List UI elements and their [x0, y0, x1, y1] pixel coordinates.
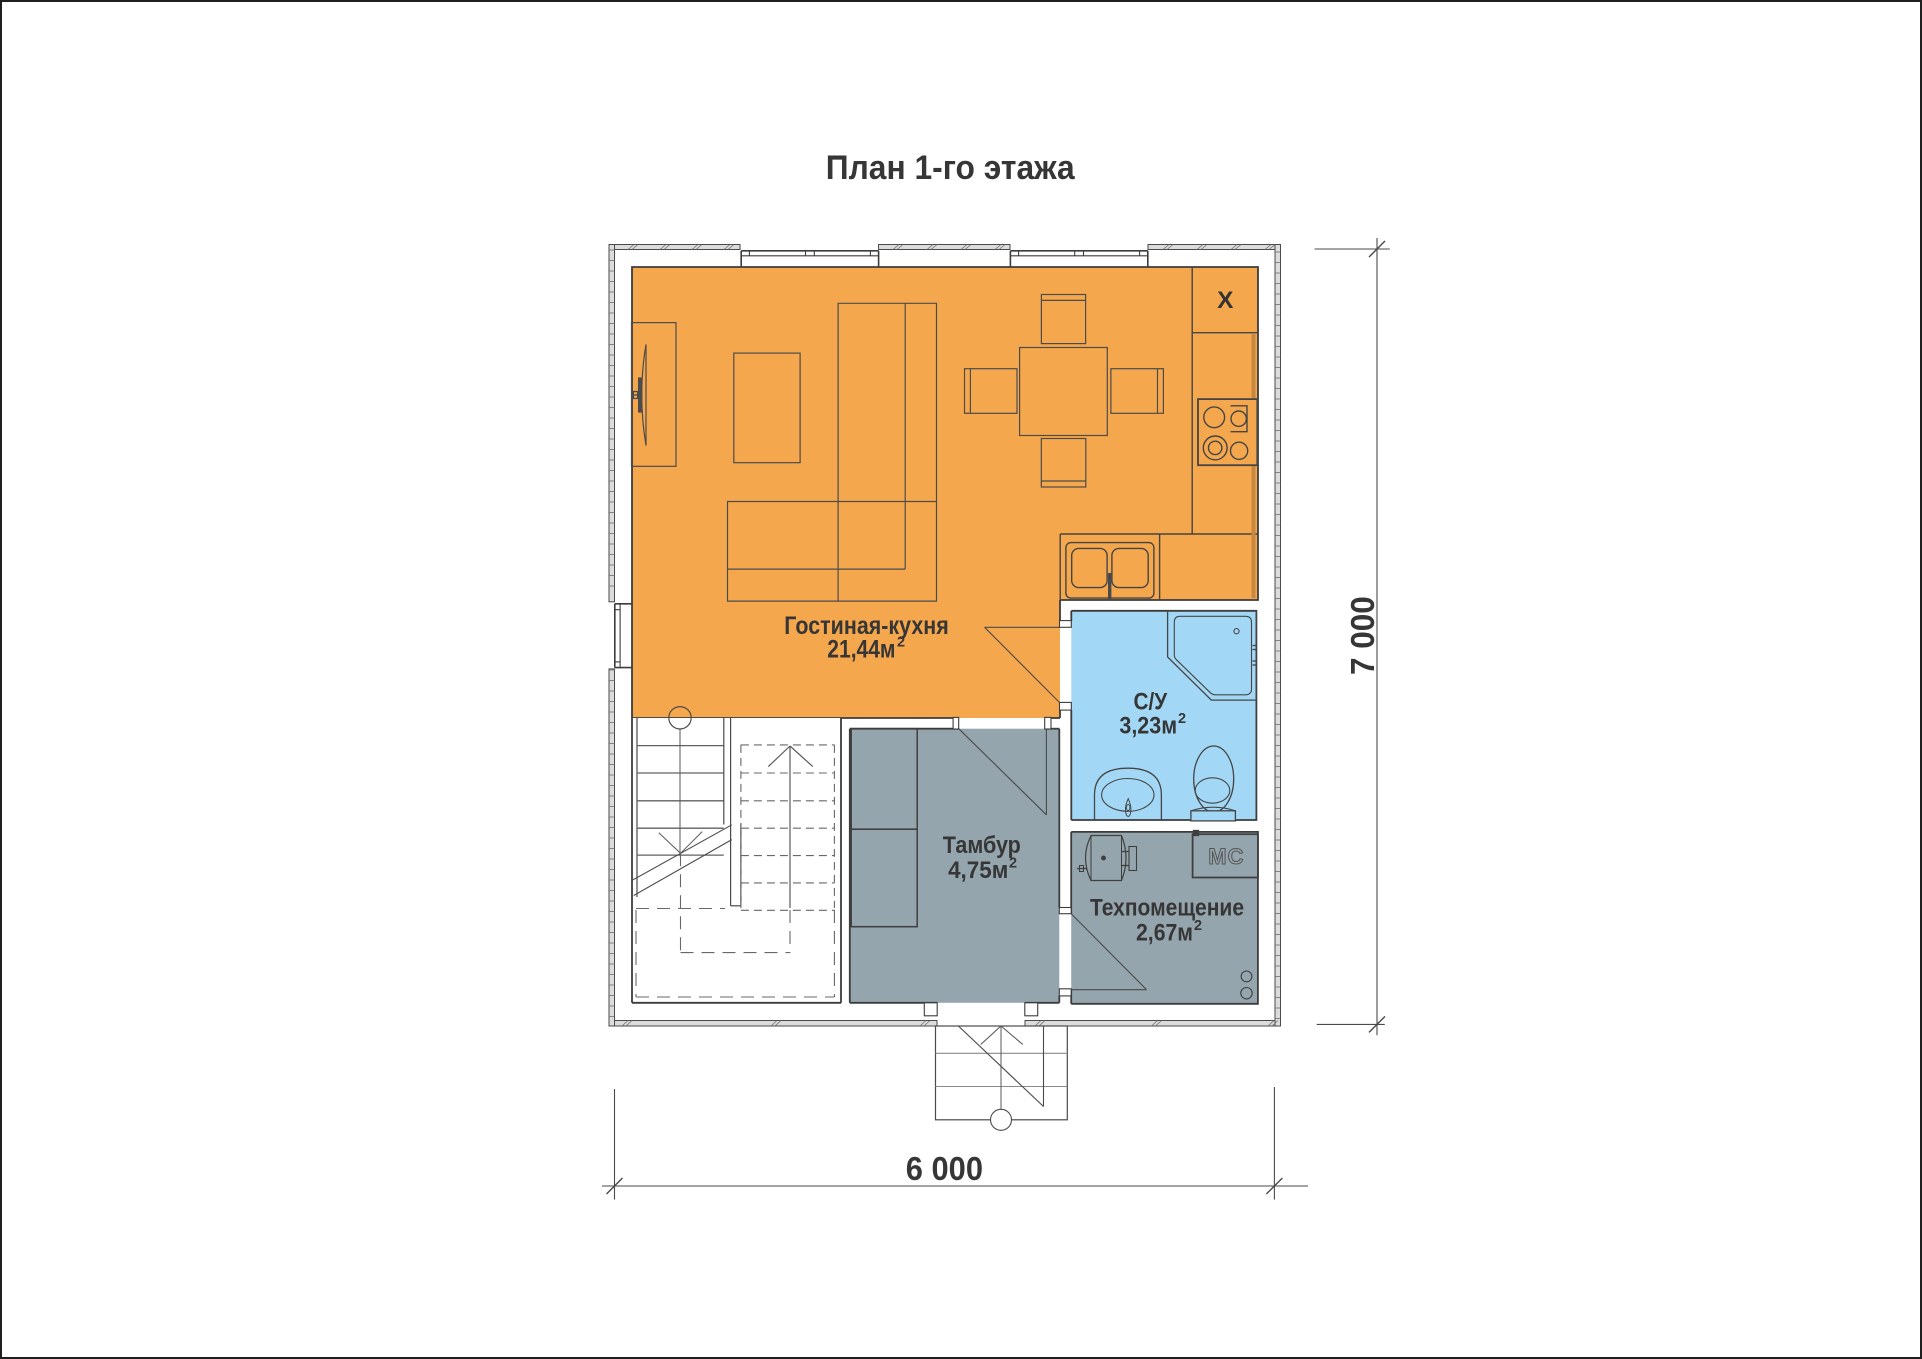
svg-text:21,44м: 21,44м [827, 635, 895, 663]
svg-text:2: 2 [1009, 856, 1017, 872]
svg-text:2: 2 [1178, 711, 1186, 727]
svg-text:7 000: 7 000 [1344, 596, 1381, 675]
svg-text:План 1-го этажа: План 1-го этажа [826, 149, 1076, 187]
svg-text:С/У: С/У [1134, 689, 1169, 716]
svg-text:Техпомещение: Техпомещение [1090, 894, 1244, 921]
svg-text:3,23м: 3,23м [1119, 713, 1177, 740]
svg-text:2,67м: 2,67м [1136, 920, 1193, 947]
svg-text:4,75м: 4,75м [948, 857, 1008, 884]
svg-text:МС: МС [1208, 844, 1244, 869]
svg-text:6 000: 6 000 [906, 1150, 983, 1187]
svg-text:2: 2 [897, 635, 905, 651]
svg-text:Х: Х [1217, 287, 1234, 314]
svg-text:2: 2 [1194, 918, 1202, 934]
